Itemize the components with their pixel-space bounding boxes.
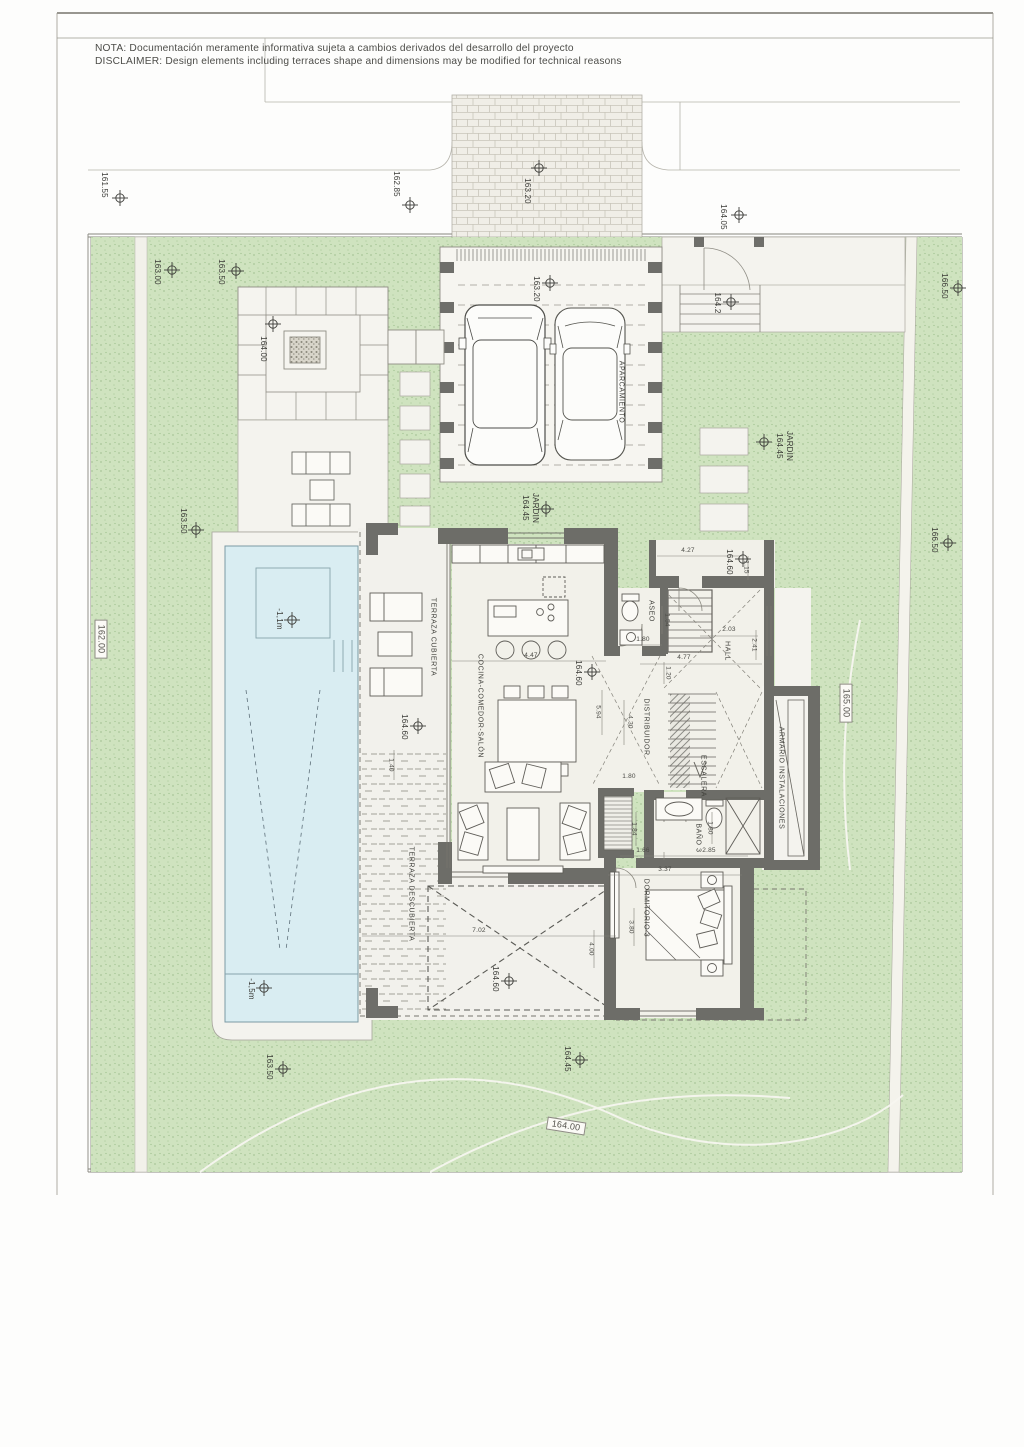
level-street-3: 163.20 bbox=[523, 178, 531, 204]
dim-447: 4.47 bbox=[524, 653, 537, 660]
dim-180b: 1.80 bbox=[622, 774, 635, 781]
wardrobe-hatched bbox=[604, 796, 632, 850]
pool-depth-deep: -1,5m bbox=[247, 978, 255, 999]
dim-166: 1.66 bbox=[636, 848, 649, 855]
room-label-kitchen-living: COCINA-COMEDOR-SALÓN bbox=[477, 654, 484, 758]
level-ne-corner: 166.50 bbox=[940, 273, 948, 299]
level-garden-nw-2: 163.50 bbox=[217, 259, 225, 285]
contour-165: 165.00 bbox=[840, 684, 853, 723]
scanned-site-plan-page: NOTA: Documentación meramente informativ… bbox=[0, 0, 1024, 1447]
level-street-2: 162.85 bbox=[392, 171, 400, 197]
level-garden-se: 164.45 bbox=[563, 1046, 571, 1072]
level-garden-nw-1: 163.00 bbox=[153, 259, 161, 285]
dim-285: 2.85 bbox=[702, 848, 715, 855]
room-label-parking: APARCAMIENTO bbox=[618, 361, 625, 424]
tv-console bbox=[483, 866, 563, 873]
dim-180a: 1.80 bbox=[636, 637, 649, 644]
room-label-stairs: ESCALERA bbox=[700, 755, 707, 797]
entry-court bbox=[662, 237, 905, 332]
car-suv bbox=[459, 305, 551, 465]
dim-337: 3.37 bbox=[658, 867, 671, 874]
level-porch: 164.60 bbox=[725, 549, 733, 575]
room-label-utility: ARMARIO INSTALACIONES bbox=[778, 727, 785, 830]
level-street-1: 161.55 bbox=[100, 172, 108, 198]
dim-380: 3.80 bbox=[627, 920, 634, 933]
garden-center-jardin: JARDIN bbox=[531, 493, 539, 523]
dim-154: 1.54 bbox=[663, 613, 670, 626]
dim-203: 2.03 bbox=[722, 627, 735, 634]
sun-deck bbox=[238, 420, 388, 532]
room-label-open-terrace: TERRAZA DESCUBIERTA bbox=[408, 847, 415, 942]
room-label-hall: HALL bbox=[724, 641, 731, 661]
driveway-apron bbox=[452, 95, 642, 237]
level-terrace-covered: 164.60 bbox=[400, 714, 408, 740]
level-garden-east: 164.45 bbox=[775, 433, 783, 459]
level-pergola: 164.00 bbox=[259, 336, 267, 362]
dim-702: 7.02 bbox=[472, 928, 485, 935]
room-label-corridor: DISTRIBUIDOR bbox=[643, 698, 650, 755]
level-entry-gate: 164.2 bbox=[713, 292, 721, 313]
site-plan-drawing bbox=[0, 0, 1024, 1447]
room-label-bath3: BAÑO 3 bbox=[695, 823, 702, 852]
level-parking: 163.20 bbox=[532, 276, 540, 302]
west-path bbox=[135, 237, 147, 1172]
terrace-decking bbox=[362, 748, 446, 1014]
swimming-pool bbox=[225, 546, 358, 1022]
level-street-4: 164.05 bbox=[719, 204, 727, 230]
dim-241: 2.41 bbox=[750, 638, 757, 651]
dim-594: 5.94 bbox=[594, 705, 601, 718]
note-line-2: DISCLAIMER: Design elements including te… bbox=[95, 56, 622, 67]
room-label-toilet: ASEO bbox=[648, 600, 655, 622]
garden-east-jardin: JARDIN bbox=[785, 431, 793, 461]
dim-120: 1.20 bbox=[664, 666, 671, 679]
level-terrace-open: 164.60 bbox=[491, 966, 499, 992]
level-garden-center: 164.45 bbox=[521, 495, 529, 521]
dim-184: 1.84 bbox=[630, 822, 637, 835]
level-garden-east-2: 166.50 bbox=[930, 527, 938, 553]
room-label-bedroom3: DORMITORIO 3 bbox=[643, 879, 650, 937]
kitchen-island bbox=[488, 600, 568, 636]
level-garden-s: 163.50 bbox=[265, 1054, 273, 1080]
dim-427: 4.27 bbox=[681, 548, 694, 555]
pool-depth-shallow: -1,1m bbox=[275, 608, 283, 629]
dim-140: 1.40 bbox=[387, 758, 394, 771]
coffee-table bbox=[507, 808, 539, 860]
dim-430: 4.30 bbox=[626, 715, 633, 728]
dim-180c: 1.80 bbox=[706, 821, 713, 834]
room-label-covered-terrace: TERRAZA CUBIERTA bbox=[430, 598, 437, 677]
dim-115: 1.15 bbox=[742, 560, 749, 573]
level-house-floor: 164.60 bbox=[574, 660, 582, 686]
headboard bbox=[724, 886, 732, 964]
dim-400: 4.00 bbox=[587, 942, 594, 955]
dim-477: 4.77 bbox=[677, 655, 690, 662]
contour-162: 162.00 bbox=[95, 620, 108, 659]
level-garden-w: 163.50 bbox=[179, 508, 187, 534]
note-line-1: NOTA: Documentación meramente informativ… bbox=[95, 43, 574, 54]
